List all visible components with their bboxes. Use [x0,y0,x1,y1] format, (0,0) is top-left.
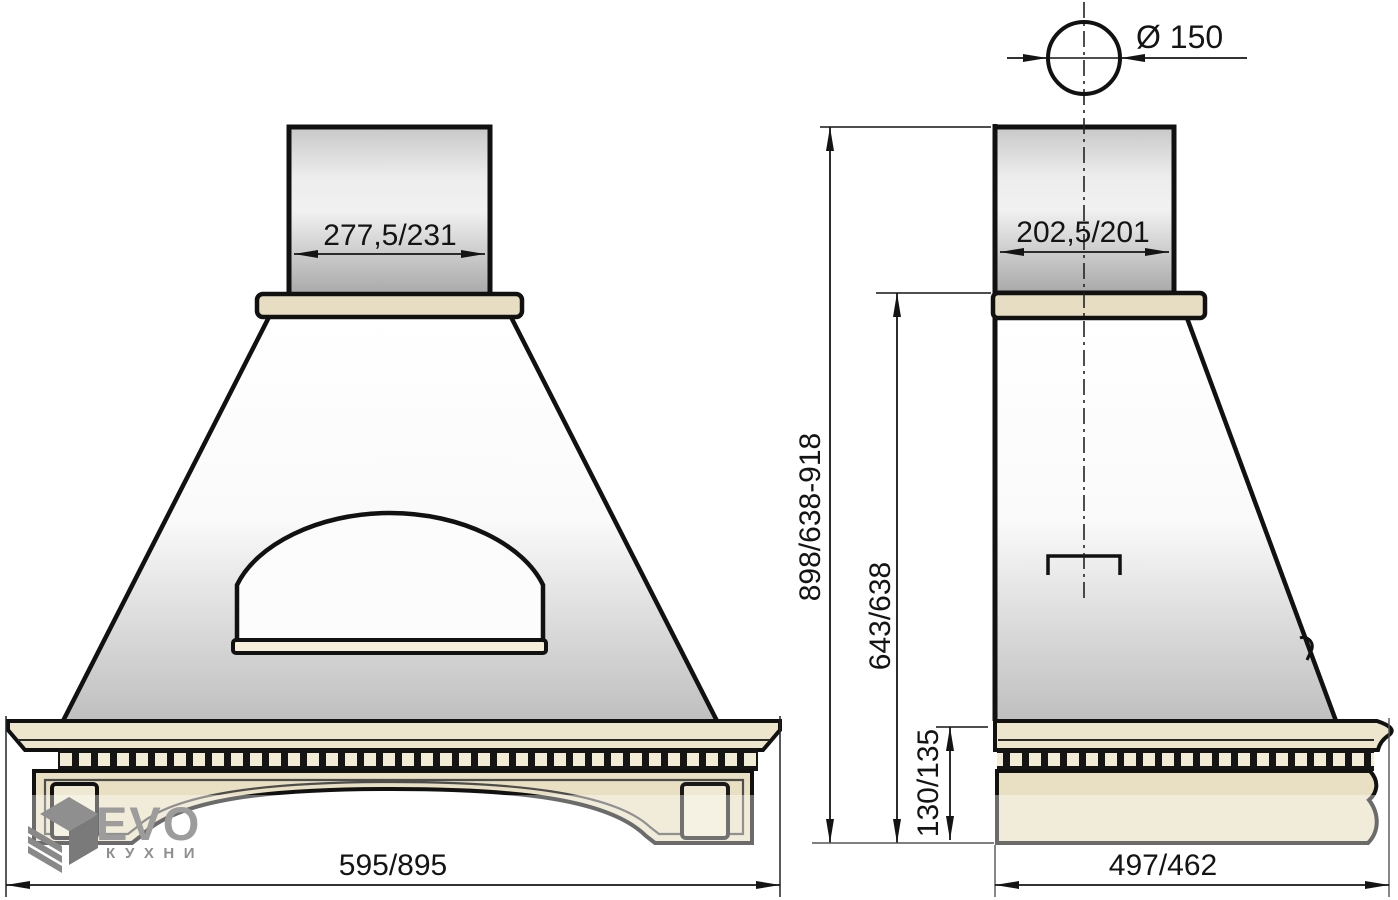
side-shelf [993,293,1205,318]
front-cornice-cap [8,721,780,750]
watermark-band [0,795,1398,845]
cornice-height-label: 130/135 [912,633,946,900]
front-base-width-label: 595/895 [293,849,493,883]
front-shelf [257,294,522,317]
logo-subtitle-text: кухни [106,846,204,862]
duct-diameter-label: Ø 150 [1136,20,1276,54]
front-duct [289,127,490,295]
hood-technical-drawing: 277,5/231 202,5/201 Ø 150 898/638-918 64… [0,0,1398,900]
front-arch-sill [233,640,546,653]
drawing-canvas [0,0,1398,900]
logo-brand-text: EVO [96,802,201,846]
front-duct-width-label: 277,5/231 [290,219,490,253]
side-dentil-molding [997,749,1374,771]
total-height-label: 898/638-918 [794,367,828,667]
side-cornice-cap [995,721,1392,750]
body-height-label: 643/638 [864,466,898,766]
side-base-depth-label: 497/462 [1063,849,1263,883]
side-body [995,318,1336,721]
front-dentil-molding [58,749,758,771]
side-duct-depth-label: 202,5/201 [983,216,1183,250]
